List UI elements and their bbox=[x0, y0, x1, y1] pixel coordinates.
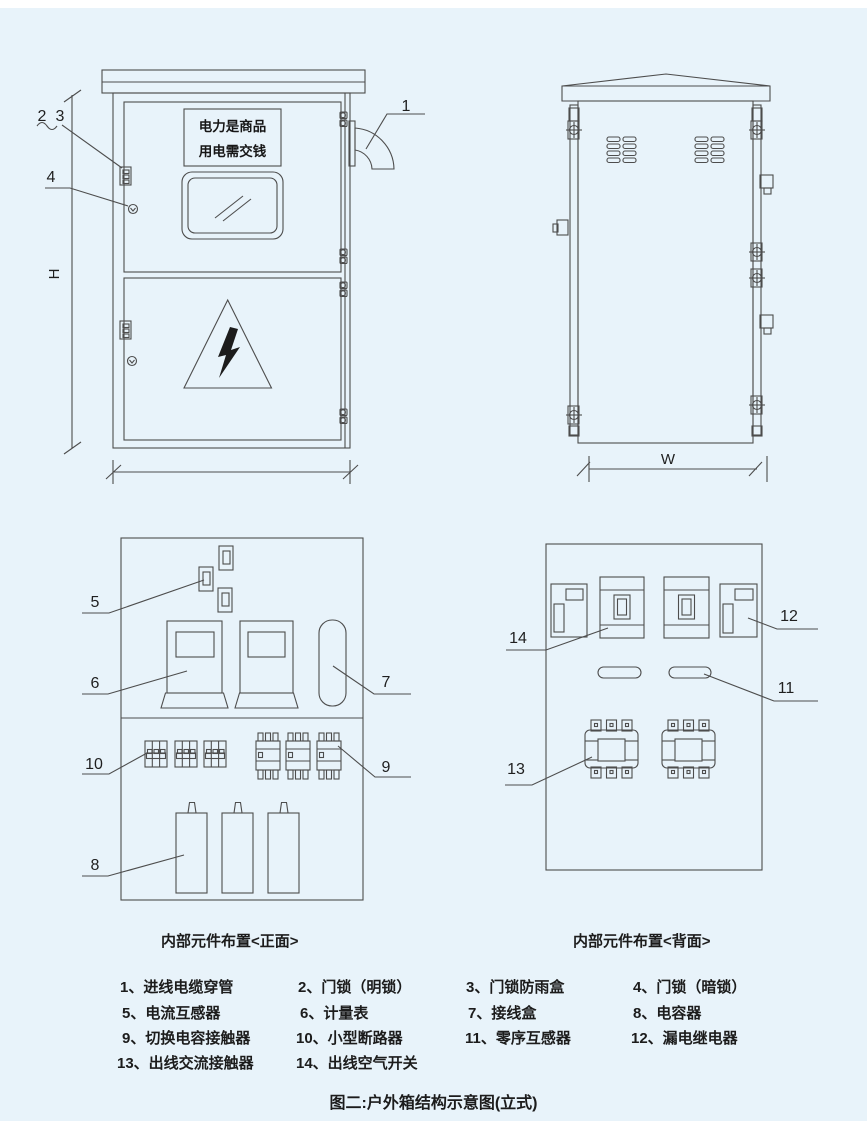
internal-panel-back bbox=[546, 544, 762, 870]
callout-10: 10 bbox=[85, 756, 103, 773]
front-width-dimension bbox=[106, 460, 358, 484]
cabinet-roof bbox=[102, 70, 365, 93]
capacitor-contactor bbox=[286, 733, 310, 779]
capacitor bbox=[268, 803, 299, 894]
lightning-icon bbox=[218, 327, 240, 378]
ac-contactor bbox=[585, 720, 638, 778]
capacitor bbox=[222, 803, 253, 894]
hinge-icon bbox=[566, 406, 582, 436]
callout-5: 5 bbox=[91, 594, 100, 611]
hinge-icon bbox=[749, 396, 765, 436]
capacitor-contactor bbox=[256, 733, 280, 779]
callout-6: 6 bbox=[91, 675, 100, 692]
legend-item: 12、漏电继电器 bbox=[631, 1027, 738, 1048]
internal-front-caption: 内部元件布置<正面> bbox=[161, 930, 299, 951]
figure-canvas: 电力是商品 用电需交钱 bbox=[0, 0, 867, 1121]
legend-item: 10、小型断路器 bbox=[296, 1027, 403, 1048]
sign-line-1: 电力是商品 bbox=[199, 118, 267, 134]
technical-drawing: 电力是商品 用电需交钱 bbox=[0, 0, 867, 920]
mini-circuit-breaker bbox=[204, 741, 226, 767]
callout-4: 4 bbox=[47, 169, 56, 186]
legend-item: 7、接线盒 bbox=[468, 1002, 536, 1023]
keyhole-icon bbox=[128, 357, 137, 366]
energy-meter bbox=[161, 621, 228, 708]
latch-icon bbox=[760, 175, 773, 194]
internal-back-caption: 内部元件布置<背面> bbox=[573, 930, 711, 951]
legend-item: 5、电流互感器 bbox=[122, 1002, 220, 1023]
ac-contactor bbox=[662, 720, 715, 778]
cabinet-body-back bbox=[578, 101, 753, 443]
mini-circuit-breaker bbox=[175, 741, 197, 767]
junction-box bbox=[319, 620, 346, 706]
legend-item: 6、计量表 bbox=[300, 1002, 368, 1023]
legend-item: 2、门锁（明锁） bbox=[298, 976, 411, 997]
callout-8: 8 bbox=[91, 857, 100, 874]
current-transformers bbox=[199, 546, 233, 612]
door-window bbox=[182, 172, 283, 239]
door-lock-icon bbox=[120, 321, 131, 339]
door-lock-icon bbox=[120, 167, 131, 185]
leakage-relay bbox=[551, 584, 587, 637]
legend-item: 8、电容器 bbox=[633, 1002, 701, 1023]
keyhole-icon bbox=[129, 205, 138, 214]
legend-item: 9、切换电容接触器 bbox=[122, 1027, 250, 1048]
callout-14: 14 bbox=[509, 630, 527, 647]
height-label: H bbox=[46, 269, 63, 280]
cable-conduit bbox=[349, 121, 394, 169]
cabinet-roof-peaked bbox=[562, 74, 770, 101]
sign-line-2: 用电需交钱 bbox=[199, 143, 267, 159]
hinge-icon bbox=[749, 269, 765, 287]
warning-triangle-icon bbox=[184, 300, 272, 388]
warning-sign: 电力是商品 用电需交钱 bbox=[184, 109, 281, 166]
callout-1: 1 bbox=[402, 98, 411, 115]
capacitor bbox=[176, 803, 207, 894]
legend-item: 11、零序互感器 bbox=[465, 1027, 571, 1048]
hinge-icon bbox=[749, 243, 765, 261]
legend-item: 14、出线空气开关 bbox=[296, 1052, 418, 1073]
callout-3: 3 bbox=[56, 108, 65, 125]
callout-11: 11 bbox=[778, 680, 795, 697]
height-dimension: H bbox=[46, 90, 81, 454]
legend-item: 13、出线交流接触器 bbox=[117, 1052, 254, 1073]
internal-panel-front bbox=[121, 538, 363, 900]
hinge-icon bbox=[566, 108, 582, 139]
latch-icon bbox=[553, 220, 568, 235]
capacitor-contactor bbox=[317, 733, 341, 779]
air-switch bbox=[664, 577, 709, 638]
callout-7: 7 bbox=[382, 674, 391, 691]
lower-door bbox=[124, 278, 341, 440]
callout-13: 13 bbox=[507, 761, 525, 778]
zero-sequence-ct bbox=[669, 667, 711, 678]
callout-12: 12 bbox=[780, 608, 798, 625]
callout-9: 9 bbox=[382, 759, 391, 776]
internal-layout-front: 5 6 7 8 9 10 bbox=[82, 538, 411, 900]
zero-sequence-ct bbox=[598, 667, 641, 678]
width-label: W bbox=[661, 451, 676, 468]
latch-icon bbox=[760, 315, 773, 334]
leakage-relay bbox=[720, 584, 757, 637]
legend-item: 3、门锁防雨盒 bbox=[466, 976, 564, 997]
mini-circuit-breaker bbox=[145, 741, 167, 767]
back-exterior-view: W bbox=[553, 74, 773, 482]
legend-item: 4、门锁（暗锁） bbox=[633, 976, 746, 997]
energy-meter bbox=[235, 621, 298, 708]
front-exterior-view: 电力是商品 用电需交钱 bbox=[37, 70, 425, 484]
vent-louvers bbox=[607, 137, 724, 163]
legend-item: 1、进线电缆穿管 bbox=[120, 976, 233, 997]
hinge-icon bbox=[749, 108, 765, 139]
callout-2: 2 bbox=[38, 108, 47, 125]
width-dimension: W bbox=[577, 451, 767, 482]
figure-caption: 图二:户外箱结构示意图(立式) bbox=[0, 1089, 867, 1113]
internal-layout-back: 14 12 11 13 bbox=[505, 544, 818, 870]
callout-leaders bbox=[82, 580, 411, 876]
